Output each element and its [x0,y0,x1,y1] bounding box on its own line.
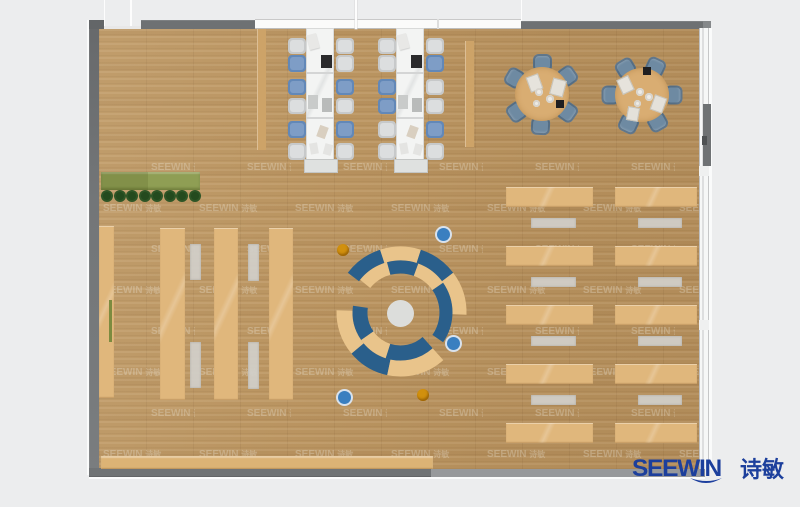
svg-text:SEEWIN: SEEWIN [632,455,721,482]
svg-text:诗敏: 诗敏 [740,457,784,482]
